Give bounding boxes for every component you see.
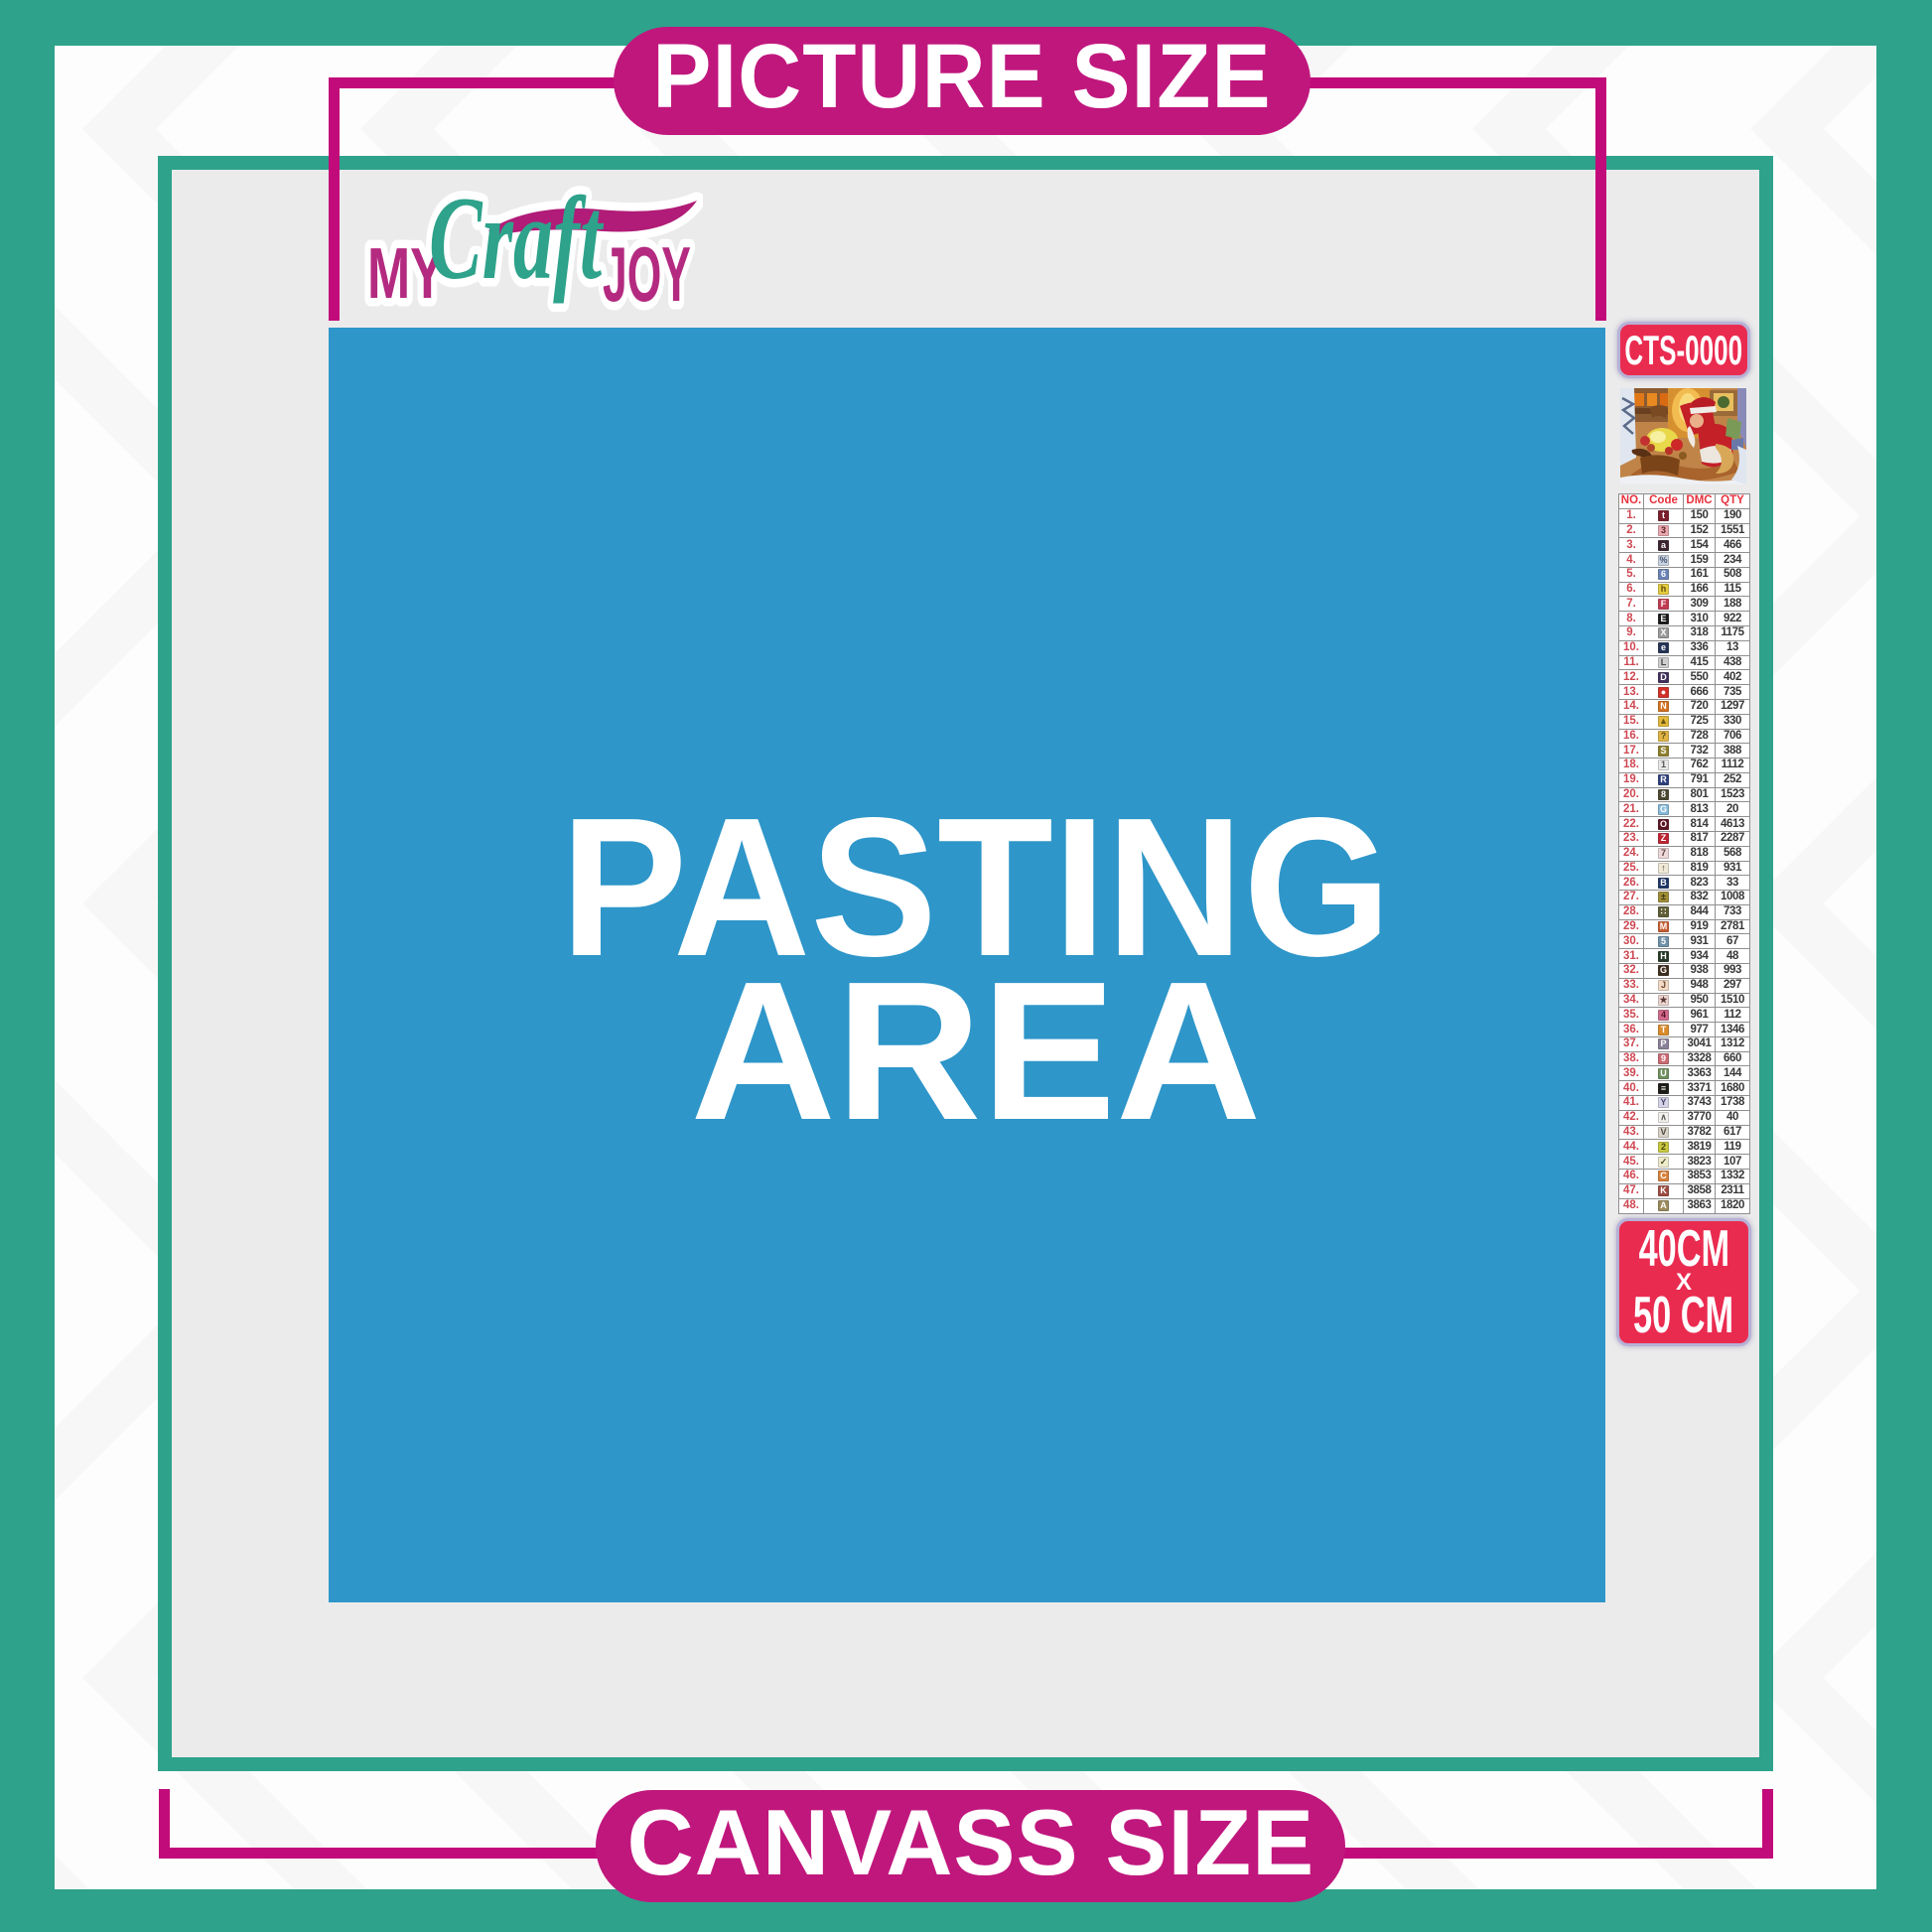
- svg-text:JOY: JOY: [603, 232, 691, 316]
- svg-text:Craft: Craft: [429, 175, 604, 305]
